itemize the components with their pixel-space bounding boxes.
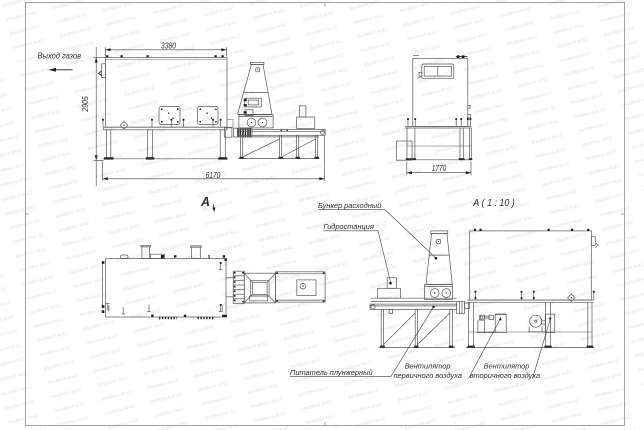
svg-text:А ( 1 : 10 ): А ( 1 : 10 ) <box>472 197 514 209</box>
svg-text:А: А <box>200 195 210 209</box>
svg-text:Выход газов: Выход газов <box>38 51 82 60</box>
svg-text:первичного воздуха: первичного воздуха <box>393 371 461 380</box>
svg-text:3380: 3380 <box>161 41 176 51</box>
svg-text:Вентилятор: Вентилятор <box>484 361 530 370</box>
svg-text:Гидростанция: Гидростанция <box>324 222 374 231</box>
svg-text:1770: 1770 <box>432 163 447 173</box>
svg-text:6170: 6170 <box>206 170 221 180</box>
svg-text:Бункер расходный: Бункер расходный <box>318 201 381 210</box>
svg-text:Питатель плунжерный: Питатель плунжерный <box>290 368 373 377</box>
svg-text:вторичного воздуха: вторичного воздуха <box>470 371 540 380</box>
svg-text:2905: 2905 <box>80 96 90 113</box>
svg-text:Вентилятор: Вентилятор <box>405 361 451 370</box>
